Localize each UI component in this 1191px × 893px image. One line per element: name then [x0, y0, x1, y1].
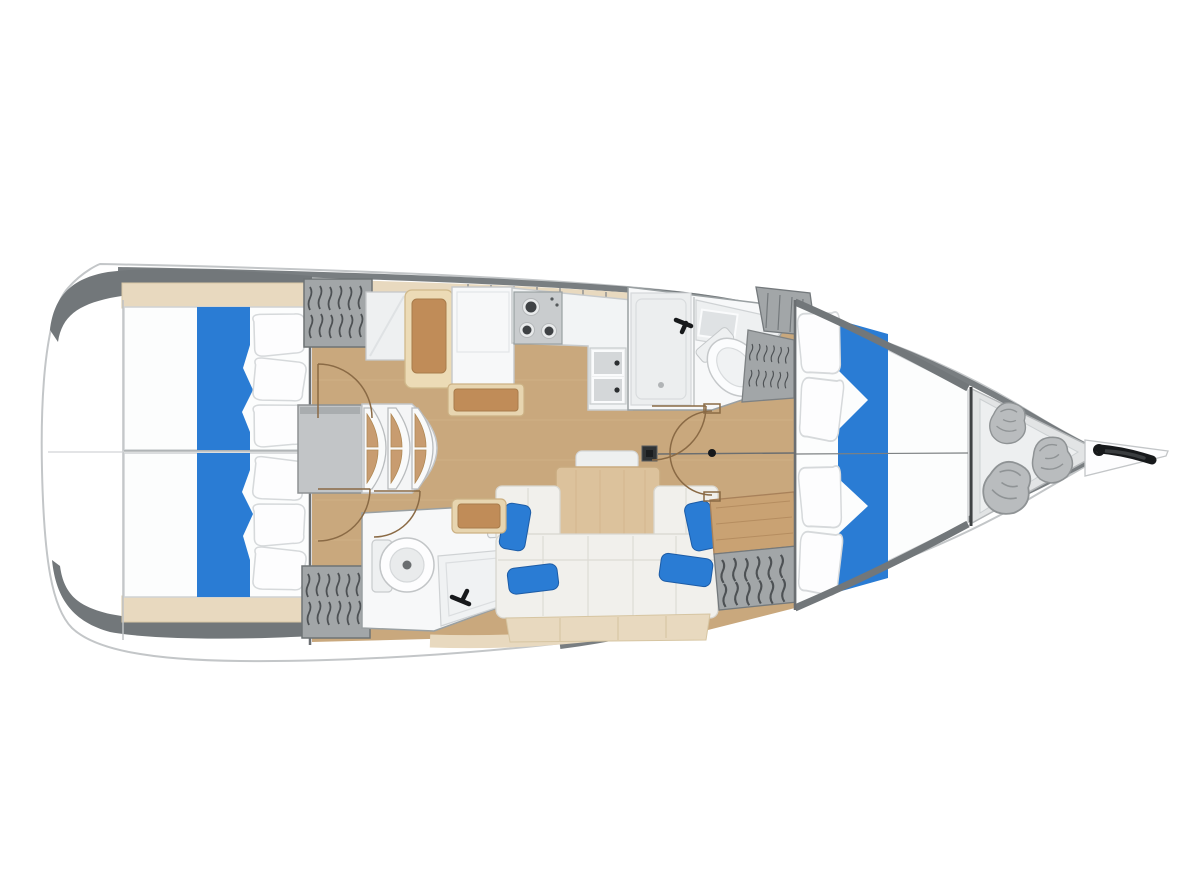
- sail-locker: [971, 387, 1168, 526]
- forward-head-wardrobe: [742, 330, 794, 402]
- engine-box-top: [300, 407, 360, 414]
- companionway-steps: [364, 408, 433, 489]
- mast-step-icon: [642, 446, 657, 461]
- companionway: [298, 404, 437, 493]
- engine-box: [298, 405, 362, 493]
- aft-trim-top: [122, 283, 310, 308]
- v-berth-blue-runner: [838, 320, 888, 592]
- sofa-base-trim: [506, 614, 710, 642]
- door-pivot: [708, 449, 716, 457]
- nav-seat: [412, 299, 446, 373]
- chart-table: [452, 287, 514, 395]
- aft-trim-bottom: [122, 596, 310, 622]
- aft-head-toilet-icon: [380, 538, 434, 592]
- nav-shelf: [454, 389, 518, 411]
- shower-drain: [658, 382, 664, 388]
- berth-runner-port: [197, 307, 253, 450]
- aft-cabins: [122, 278, 310, 645]
- forward-head-shower: [631, 293, 691, 405]
- forward-wardrobe: [710, 492, 797, 610]
- berth-runner-starboard: [197, 453, 253, 597]
- side-bench: [458, 504, 500, 528]
- galley-double-sink: [590, 348, 626, 404]
- yacht-floor-plan-page: [0, 0, 1191, 893]
- yacht-floor-plan: [0, 0, 1191, 893]
- dining-table: [556, 467, 660, 541]
